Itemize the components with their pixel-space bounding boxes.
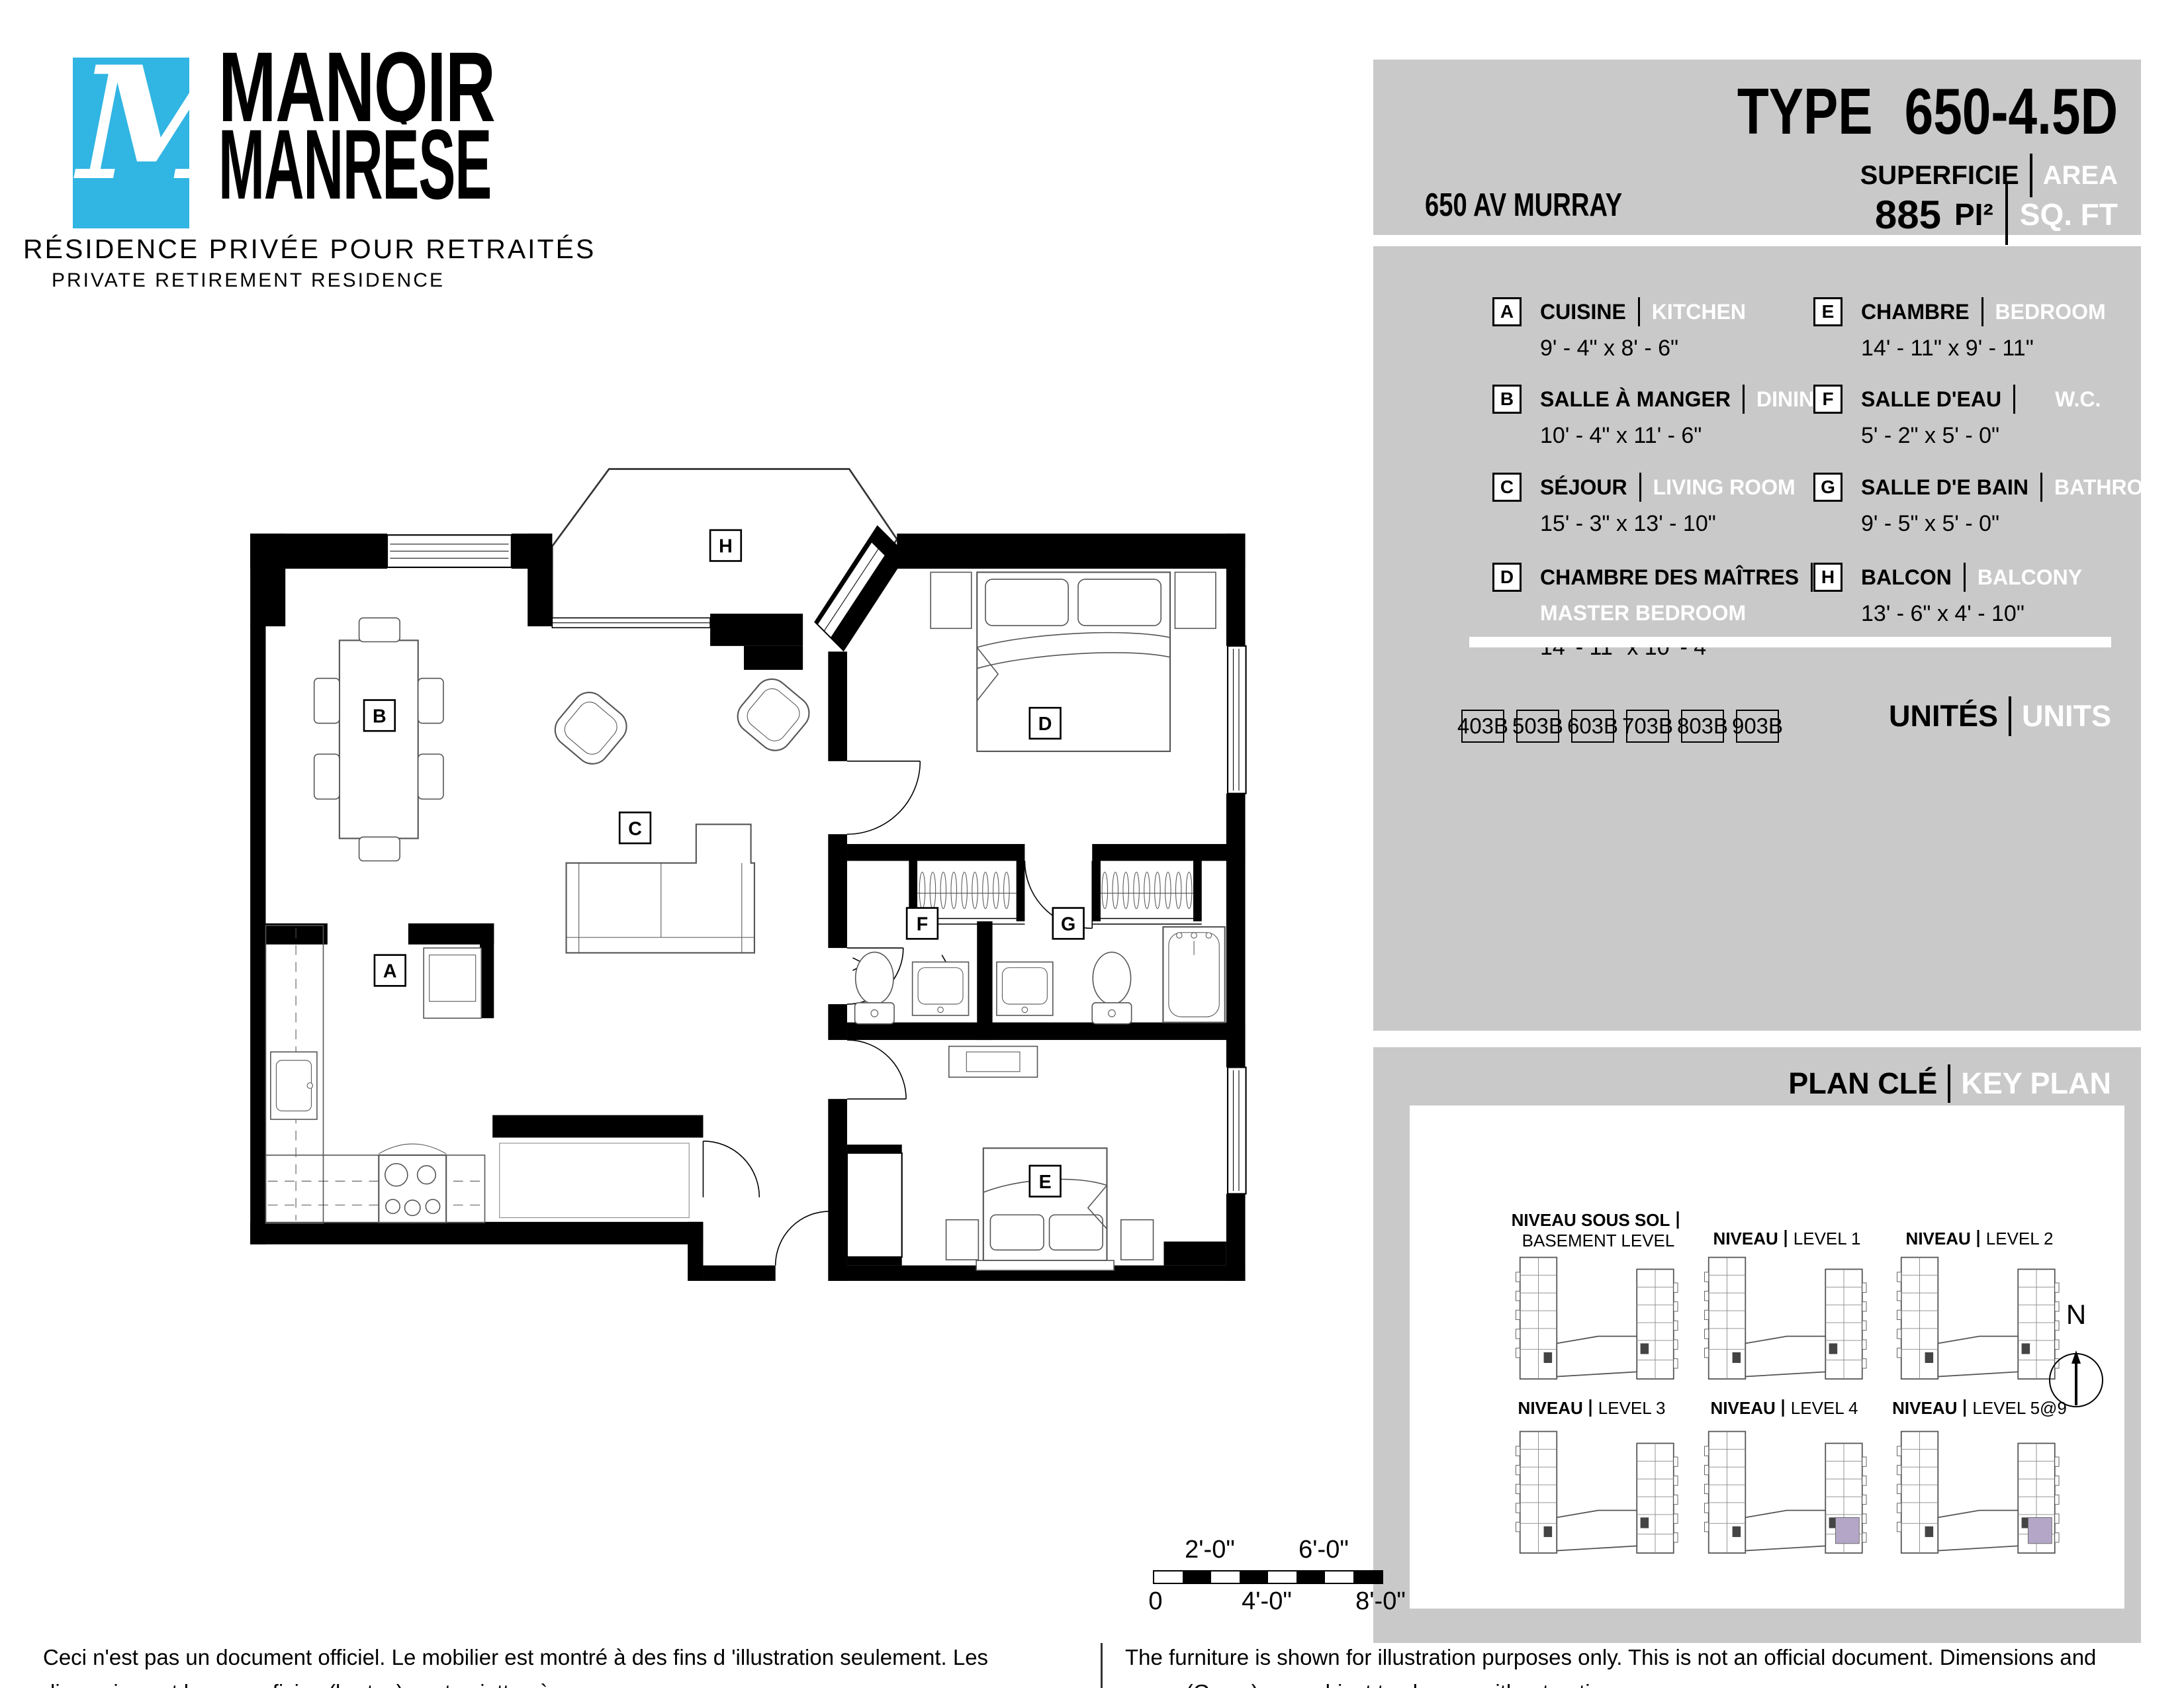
room-fr: CUISINE: [1540, 300, 1626, 324]
legend-row-F: F SALLE D'EAUW.C. 5' - 2" x 5' - 0": [1813, 385, 2101, 449]
brand-line2: MANRÈSE: [218, 126, 491, 203]
scale-tick-2ft: 2'-0": [1185, 1536, 1235, 1564]
keyplan-panel: PLAN CLÉ KEY PLAN: [1373, 1047, 2141, 1643]
level-label-2: NIVEAULEVEL 2: [1906, 1229, 2054, 1249]
room-dims: 15' - 3" x 13' - 10": [1540, 511, 1796, 537]
highlighted-unit: [1835, 1517, 1859, 1543]
room-label-D: D: [1030, 708, 1061, 739]
room-label-G: G: [1053, 908, 1084, 939]
units-title-fr: UNITÉS: [1889, 699, 1998, 733]
level-label-basement: NIVEAU SOUS SOL BASEMENT LEVEL: [1512, 1210, 1686, 1251]
room-key-box: E: [1813, 297, 1843, 326]
level-label-3: NIVEAULEVEL 3: [1518, 1398, 1666, 1419]
room-key-box: F: [1813, 385, 1843, 414]
disclaimer-divider: [1101, 1643, 1103, 1688]
units-list: 403B 503B 603B 703B 803B 903B: [1461, 710, 1779, 743]
units-divider-bar: [1469, 637, 2111, 647]
highlighted-unit: [2028, 1517, 2052, 1543]
miniplan-basement: [1509, 1254, 1688, 1397]
level-label-1: NIVEAULEVEL 1: [1713, 1229, 1861, 1249]
unit-badge: 903B: [1736, 710, 1779, 743]
room-key-box: G: [1813, 473, 1843, 502]
room-fr: SALLE D'EAU: [1861, 387, 2001, 412]
svg-text:E: E: [1039, 1172, 1052, 1193]
legend-row-H: H BALCONBALCONY 13' - 6" x 4' - 10": [1813, 563, 2082, 627]
disclaimer-french: Ceci n'est pas un document officiel. Le …: [43, 1640, 1075, 1688]
legend-row-G: G SALLE D'E BAINBATHROOM 9' - 5" x 5' - …: [1813, 473, 2177, 537]
brand-wordmark: MANOIR MANRÈSE: [218, 48, 705, 203]
room-fr: SALLE D'E BAIN: [1861, 475, 2028, 500]
scale-tick-4ft: 4'-0": [1242, 1587, 1292, 1616]
legend-row-E: E CHAMBREBEDROOM 14' - 11" x 9' - 11": [1813, 297, 2106, 361]
header-panel: TYPE650-4.5D SUPERFICIE AREA 650 AV MURR…: [1373, 60, 2141, 235]
legend-row-C: C SÉJOURLIVING ROOM 15' - 3" x 13' - 10": [1492, 473, 1796, 537]
svg-text:D: D: [1038, 714, 1052, 735]
type-label: TYPE: [1737, 75, 1873, 148]
keyplan-canvas: NIVEAU SOUS SOL BASEMENT LEVEL NIVEAULEV…: [1410, 1105, 2124, 1609]
room-dims: 5' - 2" x 5' - 0": [1861, 423, 2101, 449]
units-title-en: UNITS: [2022, 699, 2111, 733]
room-fr: SÉJOUR: [1540, 475, 1627, 500]
unit-badge: 703B: [1626, 710, 1669, 743]
monogram-letter: M: [78, 58, 189, 215]
room-key-box: C: [1492, 473, 1522, 502]
svg-text:F: F: [917, 914, 929, 935]
room-key-box: A: [1492, 297, 1522, 326]
legend-row-B: B SALLE À MANGERDINING 10' - 4" x 11' - …: [1492, 385, 1831, 449]
unit-badge: 603B: [1571, 710, 1614, 743]
scale-tick-8ft: 8'-0": [1355, 1587, 1406, 1616]
brand-tagline-en: PRIVATE RETIREMENT RESIDENCE: [23, 269, 473, 292]
divider-bar: [1948, 1064, 1950, 1103]
room-label-H: H: [710, 530, 741, 561]
miniplan-level4: [1698, 1429, 1876, 1571]
unit-type-title: TYPE650-4.5D: [1642, 74, 2118, 149]
room-fr: SALLE À MANGER: [1540, 387, 1731, 412]
level-label-4: NIVEAULEVEL 4: [1711, 1398, 1858, 1419]
svg-text:G: G: [1061, 914, 1075, 935]
legend-panel: A CUISINEKITCHEN 9' - 4" x 8' - 6" B SAL…: [1373, 246, 2141, 1031]
room-fr: CHAMBRE: [1861, 300, 1970, 324]
unit-badge: 403B: [1461, 710, 1504, 743]
brand-tagline-fr: RÉSIDENCE PRIVÉE POUR RETRAITÉS: [23, 234, 523, 265]
room-label-A: A: [375, 955, 406, 986]
area-value: 885: [1875, 192, 1941, 238]
scale-tick-0: 0: [1148, 1587, 1162, 1616]
disclaimer-english: The furniture is shown for illustration …: [1125, 1640, 2144, 1688]
room-en: LIVING ROOM: [1653, 475, 1796, 500]
room-fr: BALCON: [1861, 565, 1952, 590]
room-key-box: D: [1492, 563, 1522, 592]
room-en: KITCHEN: [1652, 300, 1746, 324]
room-dims: 10' - 4" x 11' - 6": [1540, 423, 1831, 449]
room-dims: 14' - 11" x 9' - 11": [1861, 336, 2106, 361]
north-compass-icon: N: [2038, 1297, 2115, 1423]
svg-text:B: B: [373, 706, 387, 727]
room-en: MASTER BEDROOM: [1540, 601, 1825, 626]
svg-text:N: N: [2066, 1299, 2086, 1330]
room-label-C: C: [619, 812, 651, 843]
room-label-F: F: [907, 908, 938, 939]
svg-text:C: C: [628, 818, 642, 839]
miniplan-level3: [1509, 1429, 1688, 1571]
address: 650 AV MURRAY: [1425, 187, 1678, 224]
type-value: 650-4.5D: [1904, 75, 2118, 148]
units-title: UNITÉS UNITS: [1889, 696, 2111, 736]
room-key-box: B: [1492, 385, 1522, 414]
room-key-box: H: [1813, 563, 1843, 592]
keyplan-title: PLAN CLÉ KEY PLAN: [1788, 1064, 2111, 1103]
floorplan-sheet: M MANOIR MANRÈSE RÉSIDENCE PRIVÉE POUR R…: [0, 0, 2184, 1688]
divider-bar: [2009, 696, 2011, 736]
svg-text:H: H: [719, 536, 733, 557]
brand-monogram-icon: M: [73, 58, 189, 228]
miniplan-level5at9: [1890, 1429, 2069, 1571]
floorplan-drawing: A B C D E F G H: [218, 463, 1304, 1350]
room-en: BEDROOM: [1995, 300, 2106, 324]
brand-logo: M MANOIR MANRÈSE RÉSIDENCE PRIVÉE POUR R…: [23, 56, 526, 308]
room-dims: 13' - 6" x 4' - 10": [1861, 601, 2082, 627]
room-label-B: B: [364, 700, 395, 731]
unit-badge: 803B: [1681, 710, 1724, 743]
miniplan-level1: [1698, 1254, 1876, 1397]
room-en: W.C.: [2055, 387, 2101, 412]
svg-text:A: A: [383, 961, 397, 982]
area-unit-fr: PI²: [1954, 197, 1993, 232]
scale-bar: 2'-0" 6'-0" 0 4'-0" 8'-0": [1152, 1536, 1390, 1615]
room-dims: 9' - 4" x 8' - 6": [1540, 336, 1746, 361]
room-fr: CHAMBRE DES MAÎTRES: [1540, 565, 1799, 590]
room-label-E: E: [1030, 1166, 1061, 1197]
room-en: BATHROOM: [2054, 475, 2177, 500]
keyplan-title-fr: PLAN CLÉ: [1788, 1066, 1937, 1101]
legend-row-A: A CUISINEKITCHEN 9' - 4" x 8' - 6": [1492, 297, 1746, 361]
area-unit-en: SQ. FT: [2020, 197, 2118, 232]
scale-tick-6ft: 6'-0": [1298, 1536, 1349, 1564]
scale-strip: [1153, 1570, 1383, 1584]
divider-bar: [2005, 184, 2008, 245]
keyplan-title-en: KEY PLAN: [1961, 1066, 2111, 1101]
area-value-row: 885 PI² SQ. FT: [1875, 184, 2118, 245]
room-dims: 9' - 5" x 5' - 0": [1861, 511, 2177, 537]
unit-badge: 503B: [1516, 710, 1559, 743]
room-en: BALCONY: [1978, 565, 2082, 590]
